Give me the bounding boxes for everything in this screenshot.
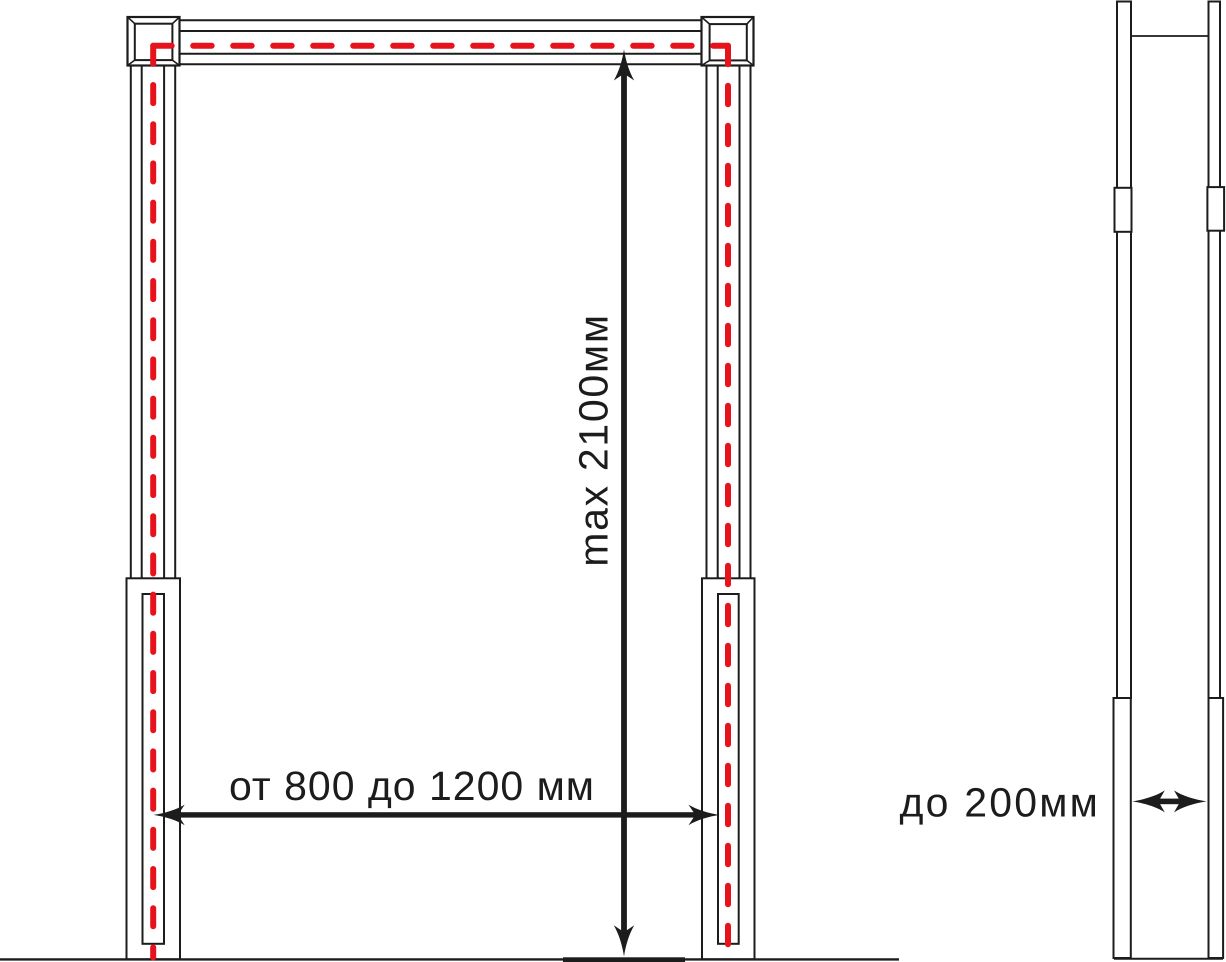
svg-text:max 2100мм: max 2100мм	[571, 313, 617, 566]
svg-text:до 200мм: до 200мм	[900, 780, 1101, 826]
svg-text:от 800 до 1200 мм: от 800 до 1200 мм	[229, 763, 595, 809]
